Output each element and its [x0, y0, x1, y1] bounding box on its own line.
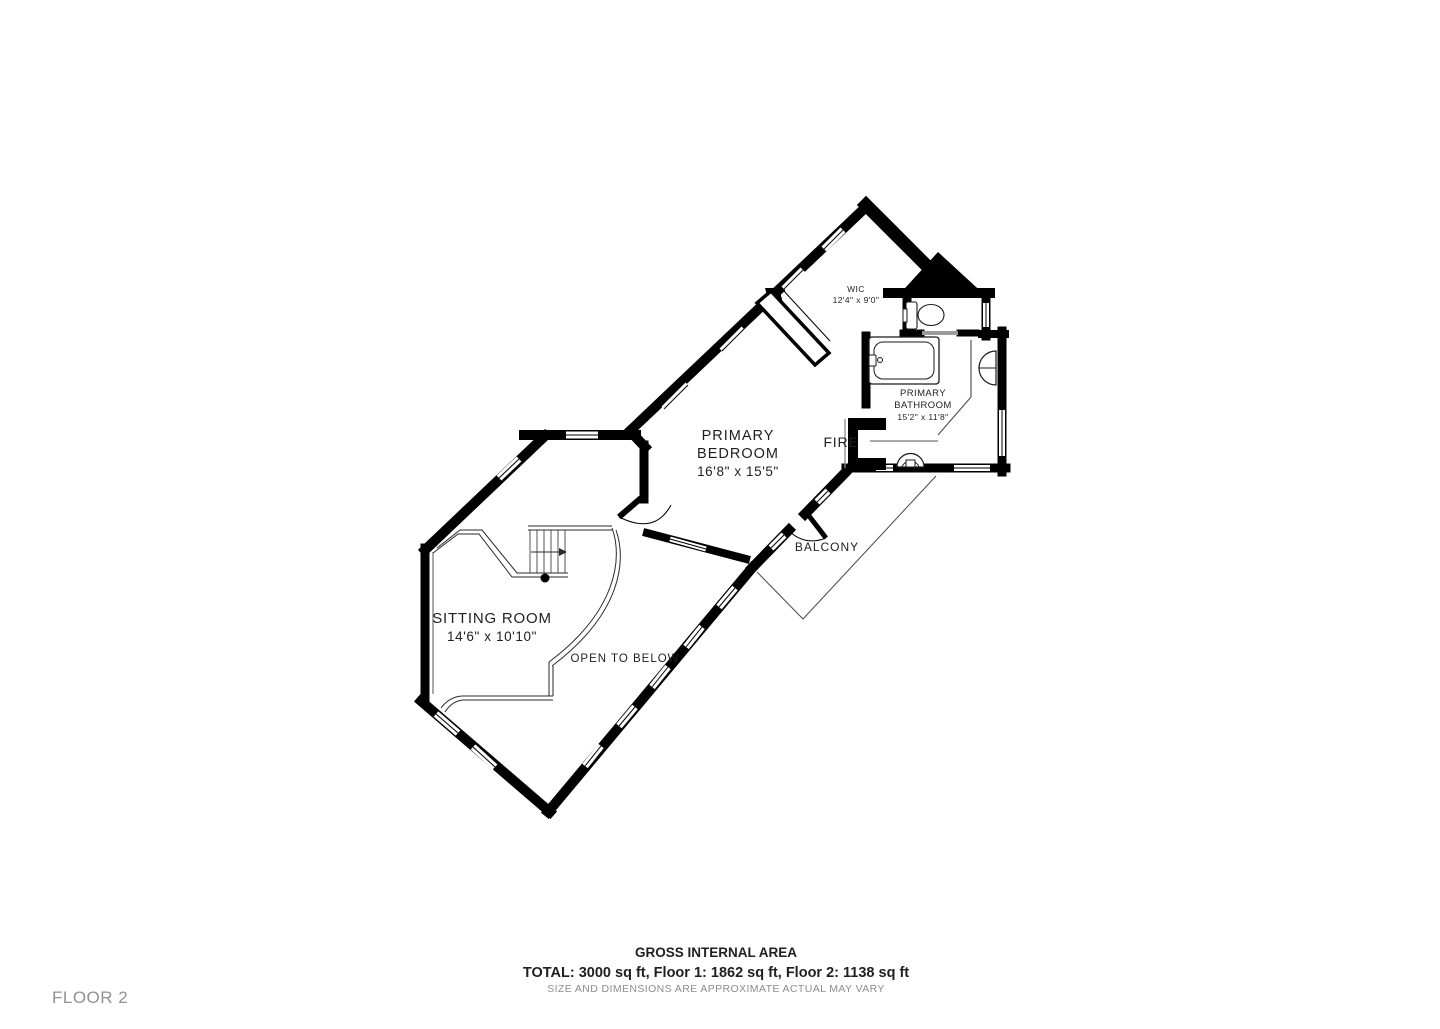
gross-area-heading: GROSS INTERNAL AREA [635, 945, 797, 960]
wic-closet [757, 288, 830, 365]
balcony-door [790, 512, 826, 541]
newel-post [541, 574, 550, 583]
bedroom-label-2: BEDROOM [697, 446, 779, 462]
fireplace-label: FIRE [823, 434, 858, 450]
bathroom-dims: 15'2" x 11'8" [897, 412, 948, 422]
toilet-icon [903, 302, 944, 329]
balcony-label: BALCONY [795, 540, 859, 554]
shower-icon [978, 351, 996, 385]
floor-plan-svg: WIC 12'4" x 9'0" PRIMARY BEDROOM 16'8" x… [0, 0, 1440, 1029]
gross-area-totals: TOTAL: 3000 sq ft, Floor 1: 1862 sq ft, … [523, 965, 909, 981]
floor-plan-page: WIC 12'4" x 9'0" PRIMARY BEDROOM 16'8" x… [0, 0, 1440, 1029]
wc-pocket-door [922, 331, 958, 335]
bedroom-dims: 16'8" x 15'5" [697, 464, 779, 479]
sitting-room-label: SITTING ROOM [432, 610, 552, 627]
sitting-room-dims: 14'6" x 10'10" [447, 629, 537, 644]
open-to-below-label: OPEN TO BELOW [570, 653, 679, 665]
sink-icon [897, 454, 924, 467]
wic-label: WIC [847, 284, 865, 294]
staircase [433, 526, 612, 583]
bedroom-label-1: PRIMARY [702, 428, 775, 444]
bathroom-label-1: PRIMARY [900, 388, 946, 399]
bathroom-fixtures [869, 302, 996, 467]
bathtub-icon [869, 337, 939, 384]
floor-label: FLOOR 2 [52, 988, 128, 1007]
wic-dims: 12'4" x 9'0" [833, 295, 880, 305]
bathroom-label-2: BATHROOM [894, 400, 951, 411]
dimensions-disclaimer: SIZE AND DIMENSIONS ARE APPROXIMATE ACTU… [547, 983, 885, 995]
